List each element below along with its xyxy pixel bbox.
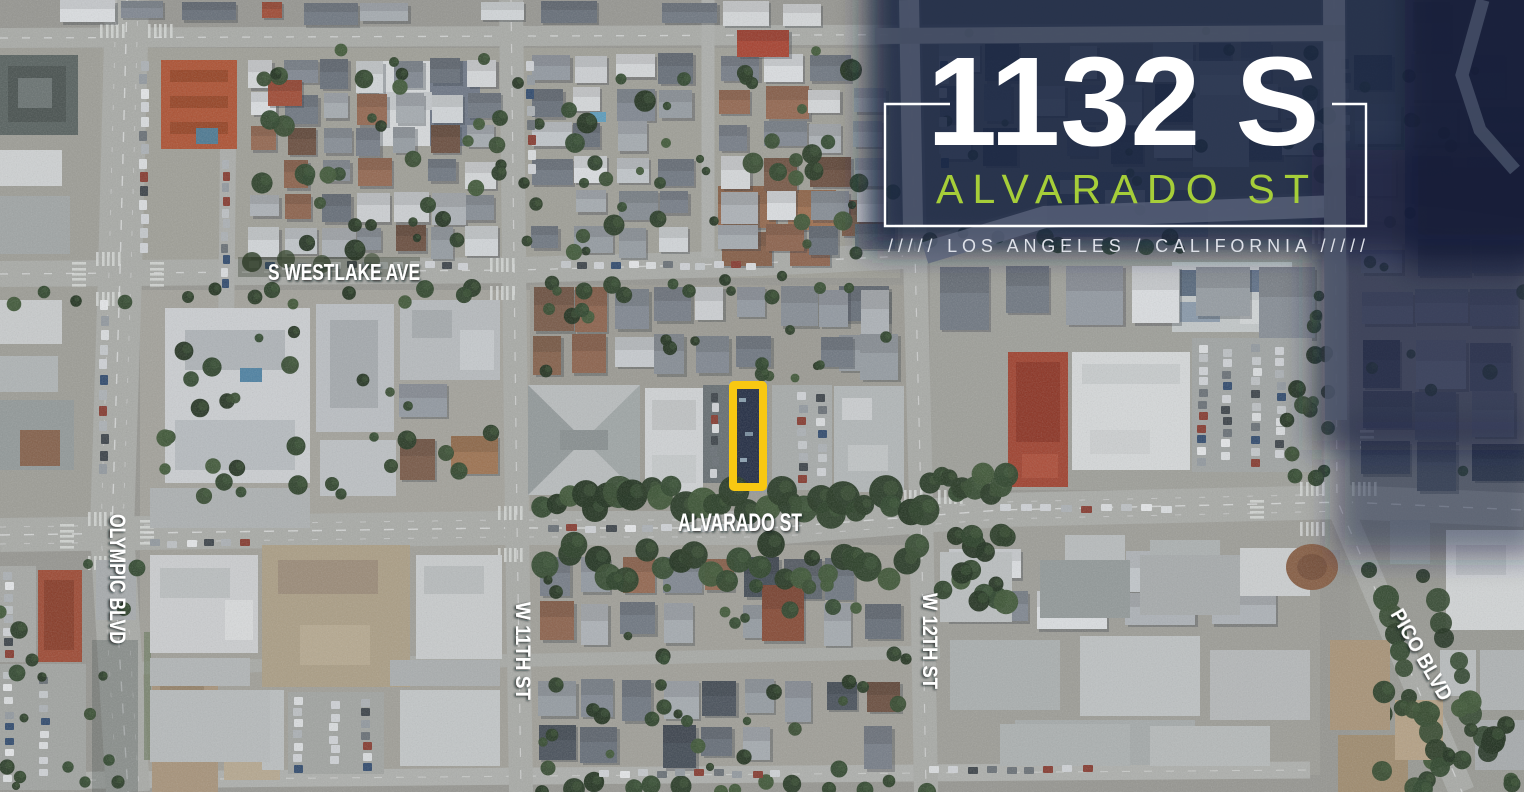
svg-text:S WESTLAKE AVE: S WESTLAKE AVE bbox=[268, 259, 420, 285]
svg-text:W 12TH ST: W 12TH ST bbox=[918, 593, 941, 689]
svg-text:ALVARADO ST: ALVARADO ST bbox=[678, 509, 802, 537]
svg-text:OLYMPIC BLVD: OLYMPIC BLVD bbox=[105, 514, 130, 644]
svg-text:1132 S: 1132 S bbox=[927, 31, 1319, 172]
svg-text:W 11TH ST: W 11TH ST bbox=[511, 602, 534, 700]
svg-text:ALVARADO ST: ALVARADO ST bbox=[936, 166, 1309, 212]
